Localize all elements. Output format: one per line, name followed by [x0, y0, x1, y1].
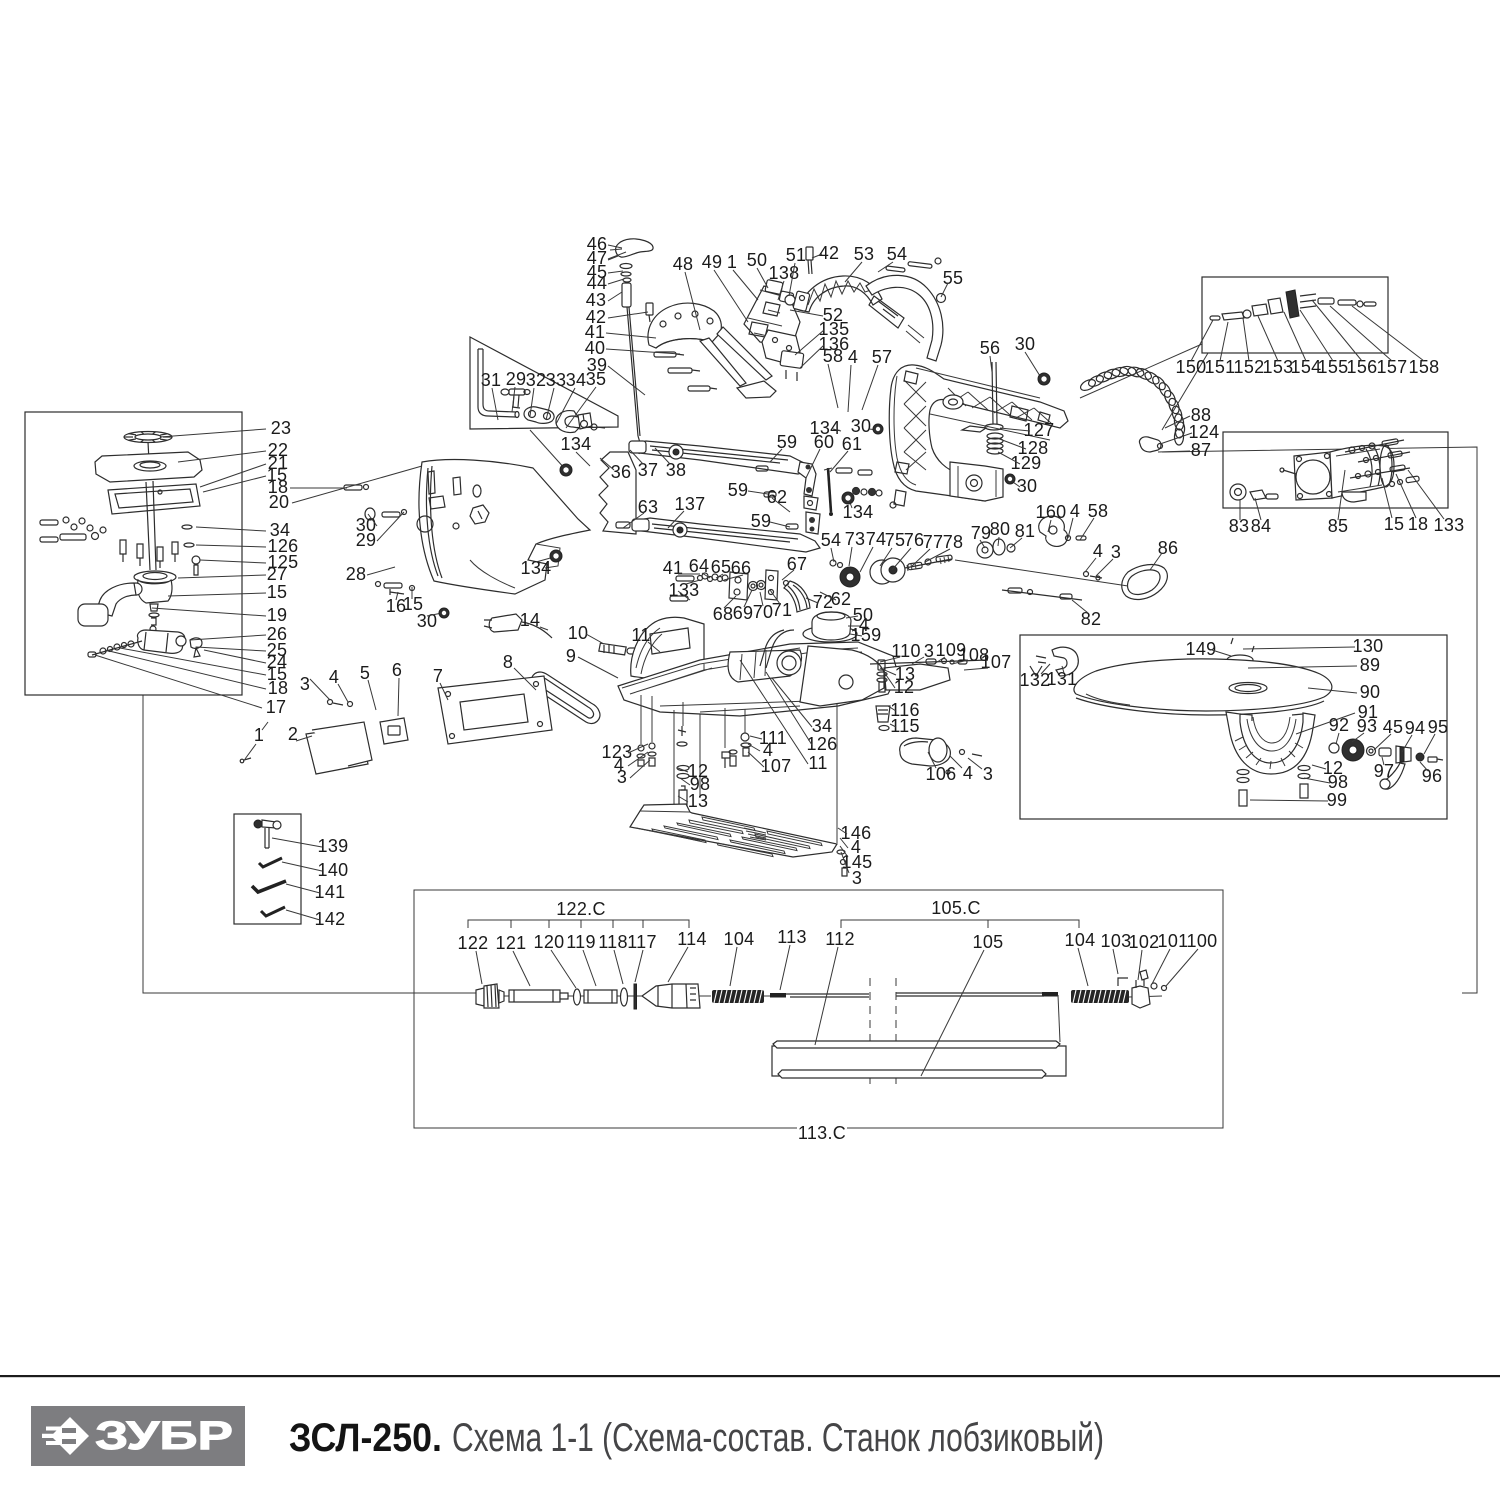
svg-text:130: 130: [1353, 636, 1384, 656]
svg-text:58: 58: [823, 346, 844, 366]
svg-text:20: 20: [269, 492, 290, 512]
svg-text:73: 73: [845, 529, 866, 549]
svg-text:3: 3: [852, 868, 862, 888]
svg-text:81: 81: [1015, 521, 1036, 541]
svg-text:139: 139: [318, 836, 349, 856]
svg-text:141: 141: [315, 882, 346, 902]
svg-text:100: 100: [1187, 931, 1218, 951]
svg-text:150: 150: [1176, 357, 1207, 377]
svg-text:33: 33: [546, 370, 567, 390]
svg-text:51: 51: [786, 245, 807, 265]
svg-text:149: 149: [1186, 639, 1217, 659]
svg-text:34: 34: [812, 716, 833, 736]
svg-text:114: 114: [677, 929, 707, 949]
svg-text:113.C: 113.C: [798, 1123, 846, 1143]
svg-text:104: 104: [1065, 930, 1096, 950]
svg-text:124: 124: [1189, 422, 1220, 442]
svg-text:37: 37: [638, 460, 659, 480]
svg-text:103: 103: [1101, 931, 1132, 951]
svg-text:59: 59: [751, 511, 772, 531]
svg-text:82: 82: [1081, 609, 1102, 629]
svg-text:92: 92: [1329, 715, 1350, 735]
svg-text:79: 79: [971, 523, 992, 543]
svg-text:18: 18: [1408, 514, 1429, 534]
svg-text:106: 106: [926, 764, 957, 784]
svg-text:115: 115: [890, 716, 920, 736]
svg-text:4: 4: [848, 347, 858, 367]
svg-text:4: 4: [1070, 501, 1080, 521]
svg-text:7: 7: [433, 666, 443, 686]
svg-text:30: 30: [1017, 476, 1038, 496]
svg-text:9: 9: [566, 646, 576, 666]
svg-text:50: 50: [747, 250, 768, 270]
svg-text:107: 107: [981, 652, 1012, 672]
svg-text:134: 134: [843, 502, 874, 522]
svg-text:3: 3: [1111, 542, 1121, 562]
svg-text:4: 4: [963, 763, 973, 783]
svg-text:99: 99: [1327, 790, 1348, 810]
svg-text:122: 122: [458, 933, 489, 953]
svg-text:41: 41: [663, 558, 684, 578]
svg-text:60: 60: [814, 432, 835, 452]
svg-text:101: 101: [1158, 931, 1189, 951]
svg-text:28: 28: [346, 564, 367, 584]
svg-text:142: 142: [315, 909, 346, 929]
svg-text:1: 1: [727, 252, 737, 272]
svg-text:153: 153: [1263, 357, 1294, 377]
svg-text:107: 107: [761, 756, 792, 776]
svg-text:Схема 1-1 (Схема-состав. Стано: Схема 1-1 (Схема-состав. Станок лобзиков…: [452, 1416, 1104, 1460]
svg-text:117: 117: [627, 932, 657, 952]
svg-text:31: 31: [481, 370, 502, 390]
svg-text:90: 90: [1360, 682, 1381, 702]
svg-text:45: 45: [1383, 717, 1404, 737]
svg-text:30: 30: [851, 416, 872, 436]
svg-text:1: 1: [254, 725, 264, 745]
svg-text:ЗУБР: ЗУБР: [95, 1414, 233, 1458]
svg-text:30: 30: [1015, 334, 1036, 354]
svg-text:5: 5: [360, 663, 370, 683]
svg-text:113: 113: [777, 927, 807, 947]
svg-text:14: 14: [520, 610, 541, 630]
svg-text:77: 77: [923, 532, 944, 552]
svg-text:68: 68: [713, 604, 734, 624]
svg-text:56: 56: [980, 338, 1001, 358]
svg-text:61: 61: [842, 434, 863, 454]
svg-text:104: 104: [724, 929, 755, 949]
svg-text:121: 121: [496, 933, 527, 953]
svg-text:94: 94: [1405, 718, 1426, 738]
svg-text:3: 3: [983, 764, 993, 784]
svg-text:89: 89: [1360, 655, 1381, 675]
svg-text:62: 62: [767, 487, 788, 507]
svg-text:57: 57: [872, 347, 893, 367]
svg-text:76: 76: [904, 530, 925, 550]
svg-text:93: 93: [1357, 716, 1378, 736]
svg-text:27: 27: [267, 564, 288, 584]
svg-text:133: 133: [1434, 515, 1465, 535]
svg-text:120: 120: [534, 932, 565, 952]
svg-text:59: 59: [728, 480, 749, 500]
svg-text:49: 49: [702, 252, 723, 272]
svg-text:74: 74: [866, 529, 887, 549]
svg-text:59: 59: [777, 432, 798, 452]
svg-text:129: 129: [1011, 453, 1042, 473]
svg-text:3: 3: [924, 641, 934, 661]
svg-text:29: 29: [506, 369, 527, 389]
svg-text:4: 4: [329, 667, 339, 687]
svg-text:80: 80: [990, 519, 1011, 539]
svg-text:155: 155: [1318, 357, 1349, 377]
svg-text:67: 67: [787, 554, 808, 574]
svg-text:32: 32: [526, 370, 547, 390]
svg-text:112: 112: [825, 929, 855, 949]
svg-text:157: 157: [1377, 357, 1408, 377]
svg-text:158: 158: [1409, 357, 1440, 377]
svg-text:78: 78: [943, 532, 964, 552]
svg-text:69: 69: [733, 603, 754, 623]
svg-text:133: 133: [669, 580, 700, 600]
svg-text:15: 15: [267, 582, 288, 602]
svg-text:119: 119: [566, 932, 596, 952]
svg-text:65: 65: [711, 557, 732, 577]
svg-text:105.C: 105.C: [931, 898, 981, 918]
svg-text:30: 30: [417, 611, 438, 631]
svg-text:15: 15: [1384, 514, 1405, 534]
svg-text:63: 63: [638, 497, 659, 517]
svg-text:23: 23: [271, 418, 292, 438]
svg-text:98: 98: [1328, 772, 1349, 792]
svg-text:11: 11: [631, 625, 650, 645]
svg-text:64: 64: [689, 556, 710, 576]
svg-text:19: 19: [267, 605, 288, 625]
svg-text:17: 17: [266, 697, 287, 717]
svg-text:134: 134: [561, 434, 592, 454]
svg-text:18: 18: [268, 678, 289, 698]
svg-text:6: 6: [392, 660, 402, 680]
svg-text:127: 127: [1024, 420, 1055, 440]
svg-text:34: 34: [566, 370, 587, 390]
svg-text:140: 140: [318, 860, 349, 880]
svg-text:96: 96: [1422, 766, 1443, 786]
svg-text:13: 13: [688, 791, 709, 811]
svg-text:71: 71: [772, 600, 793, 620]
svg-text:160: 160: [1036, 502, 1067, 522]
svg-text:55: 55: [943, 268, 964, 288]
svg-text:3: 3: [617, 767, 627, 787]
svg-text:122.C: 122.C: [556, 899, 606, 919]
svg-text:36: 36: [611, 462, 632, 482]
svg-text:87: 87: [1191, 440, 1212, 460]
svg-text:131: 131: [1047, 669, 1078, 689]
svg-text:66: 66: [731, 558, 752, 578]
svg-text:11: 11: [808, 753, 827, 773]
svg-text:54: 54: [887, 244, 908, 264]
svg-text:54: 54: [821, 530, 842, 550]
svg-text:156: 156: [1347, 357, 1378, 377]
svg-text:35: 35: [586, 369, 607, 389]
svg-text:134: 134: [521, 558, 552, 578]
svg-text:42: 42: [819, 243, 840, 263]
svg-text:12: 12: [894, 677, 915, 697]
svg-text:137: 137: [675, 494, 706, 514]
svg-text:75: 75: [885, 530, 906, 550]
svg-text:48: 48: [673, 254, 694, 274]
svg-text:ЗСЛ-250.: ЗСЛ-250.: [289, 1416, 442, 1460]
svg-text:8: 8: [503, 652, 513, 672]
svg-text:3: 3: [300, 674, 310, 694]
svg-text:53: 53: [854, 244, 875, 264]
svg-text:102: 102: [1129, 932, 1160, 952]
svg-text:4: 4: [1093, 541, 1103, 561]
svg-text:10: 10: [568, 623, 589, 643]
svg-text:29: 29: [356, 530, 377, 550]
svg-text:118: 118: [598, 932, 628, 952]
svg-text:95: 95: [1428, 717, 1449, 737]
svg-text:58: 58: [1088, 501, 1109, 521]
svg-text:105: 105: [973, 932, 1004, 952]
svg-text:83: 83: [1229, 516, 1250, 536]
